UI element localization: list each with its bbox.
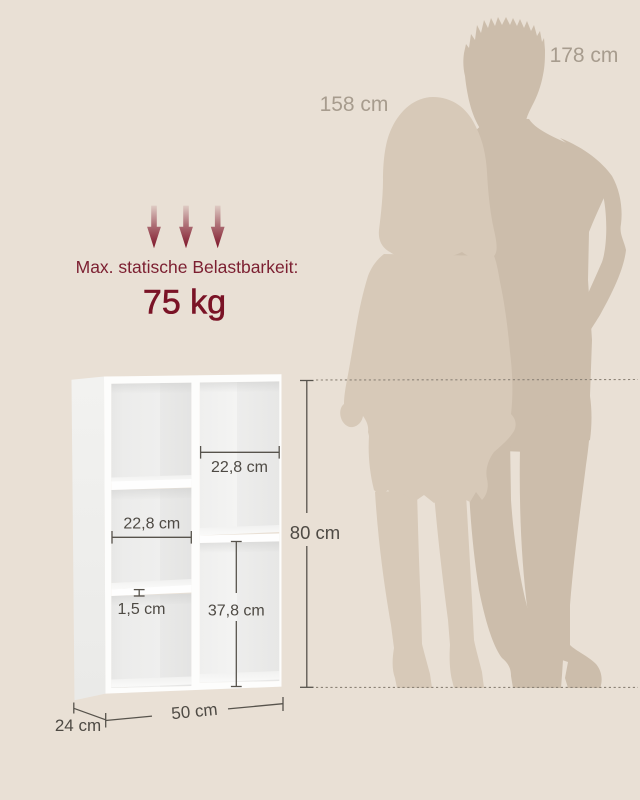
svg-text:Max. statische Belastbarkeit:: Max. statische Belastbarkeit: bbox=[76, 257, 299, 277]
svg-text:22,8 cm: 22,8 cm bbox=[211, 459, 268, 476]
svg-text:80 cm: 80 cm bbox=[290, 522, 340, 543]
svg-text:37,8 cm: 37,8 cm bbox=[208, 603, 265, 620]
svg-text:75 kg: 75 kg bbox=[143, 284, 226, 322]
svg-text:22,8 cm: 22,8 cm bbox=[123, 516, 180, 533]
svg-text:1,5 cm: 1,5 cm bbox=[117, 601, 165, 618]
svg-text:158 cm: 158 cm bbox=[320, 93, 389, 116]
svg-text:178 cm: 178 cm bbox=[550, 44, 619, 67]
svg-text:24 cm: 24 cm bbox=[55, 716, 101, 735]
